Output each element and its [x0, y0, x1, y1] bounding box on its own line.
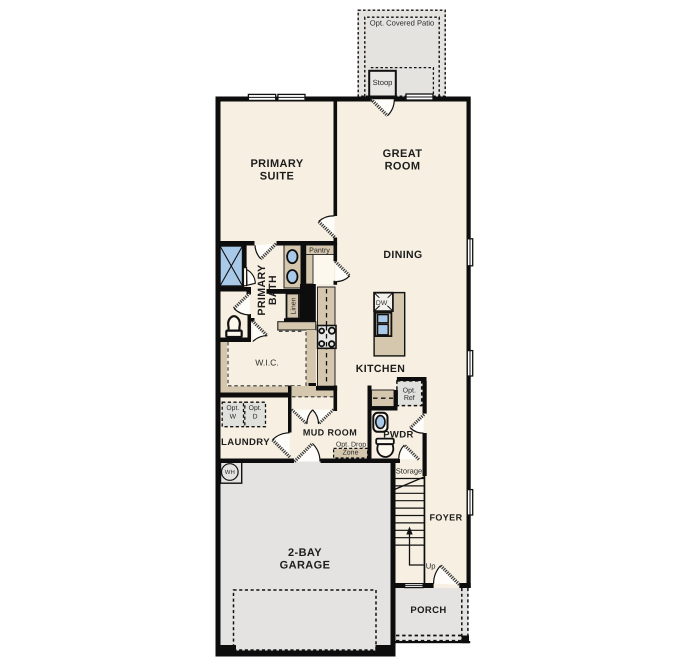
- svg-text:Opt. Drop: Opt. Drop: [336, 441, 366, 448]
- svg-text:Storage: Storage: [396, 466, 423, 475]
- svg-text:ROOM: ROOM: [385, 160, 421, 172]
- svg-text:Opt.: Opt.: [249, 405, 262, 412]
- svg-text:MUD ROOM: MUD ROOM: [303, 427, 357, 437]
- svg-text:LAUNDRY: LAUNDRY: [221, 437, 270, 448]
- svg-text:Ref: Ref: [404, 394, 415, 402]
- svg-text:Opt.: Opt.: [403, 387, 416, 394]
- svg-text:KITCHEN: KITCHEN: [356, 363, 405, 375]
- svg-text:WH: WH: [225, 469, 235, 476]
- svg-text:DW: DW: [376, 300, 388, 307]
- svg-text:GARAGE: GARAGE: [280, 559, 331, 571]
- svg-text:PORCH: PORCH: [410, 605, 446, 616]
- svg-text:Opt.: Opt.: [226, 405, 239, 412]
- svg-text:PRIMARY: PRIMARY: [250, 158, 303, 170]
- svg-text:Linen: Linen: [290, 297, 298, 314]
- svg-text:Opt. Covered Patio: Opt. Covered Patio: [370, 19, 435, 28]
- svg-text:D: D: [253, 413, 258, 420]
- svg-text:GREAT: GREAT: [383, 148, 423, 160]
- svg-text:DINING: DINING: [383, 249, 422, 261]
- svg-text:SUITE: SUITE: [260, 171, 294, 183]
- svg-text:W: W: [230, 413, 237, 420]
- svg-text:2-BAY: 2-BAY: [288, 547, 322, 559]
- svg-text:FOYER: FOYER: [429, 512, 462, 522]
- svg-text:W.I.C.: W.I.C.: [255, 357, 278, 367]
- svg-text:Pantry: Pantry: [309, 246, 330, 255]
- svg-text:Up: Up: [426, 561, 436, 570]
- svg-text:Zone: Zone: [343, 450, 359, 457]
- svg-text:Stoop: Stoop: [373, 78, 393, 87]
